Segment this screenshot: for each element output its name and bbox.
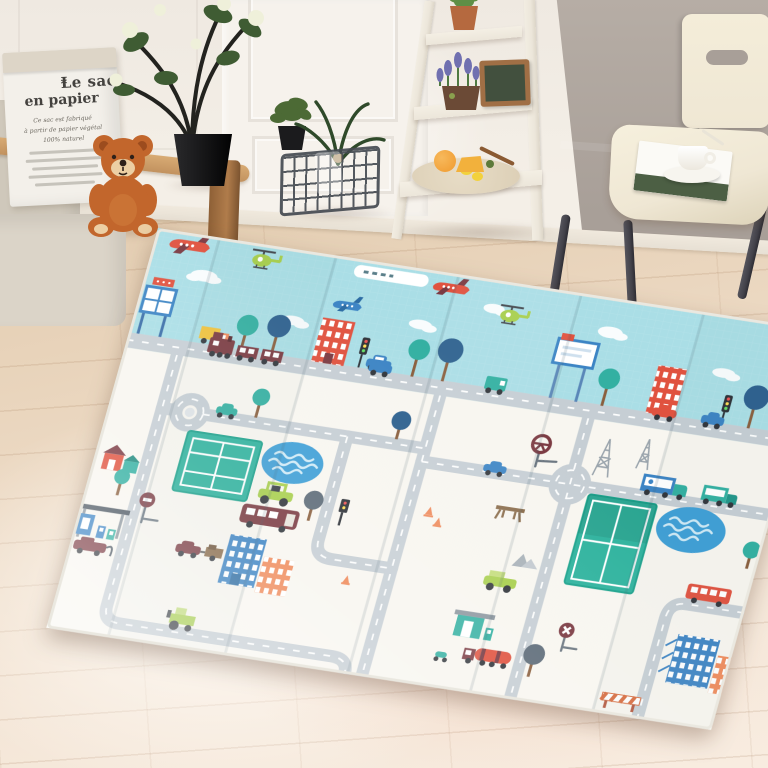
- fruit-cheese: [456, 156, 484, 172]
- fruit-lemon: [472, 172, 483, 181]
- picture-frame: [479, 59, 531, 107]
- shelf-rail-right: [524, 0, 543, 240]
- serving-spoon: [479, 146, 515, 166]
- ladder-shelf: [396, 0, 552, 240]
- room-photo: Le sac* en papier Ce sac est fabriqué à …: [0, 0, 768, 768]
- fruit-plate: [412, 158, 520, 194]
- chair-backrest-handle: [706, 50, 748, 65]
- fruit-orange: [434, 150, 456, 172]
- succulent-pot: [438, 0, 490, 32]
- picture-frame-photo: [484, 64, 525, 101]
- coffee-cup-handle: [704, 152, 716, 164]
- teddy-bear: [74, 126, 178, 240]
- fruit-garnish: [486, 160, 494, 168]
- basket-vase: [315, 151, 344, 195]
- chair-backrest: [682, 14, 768, 128]
